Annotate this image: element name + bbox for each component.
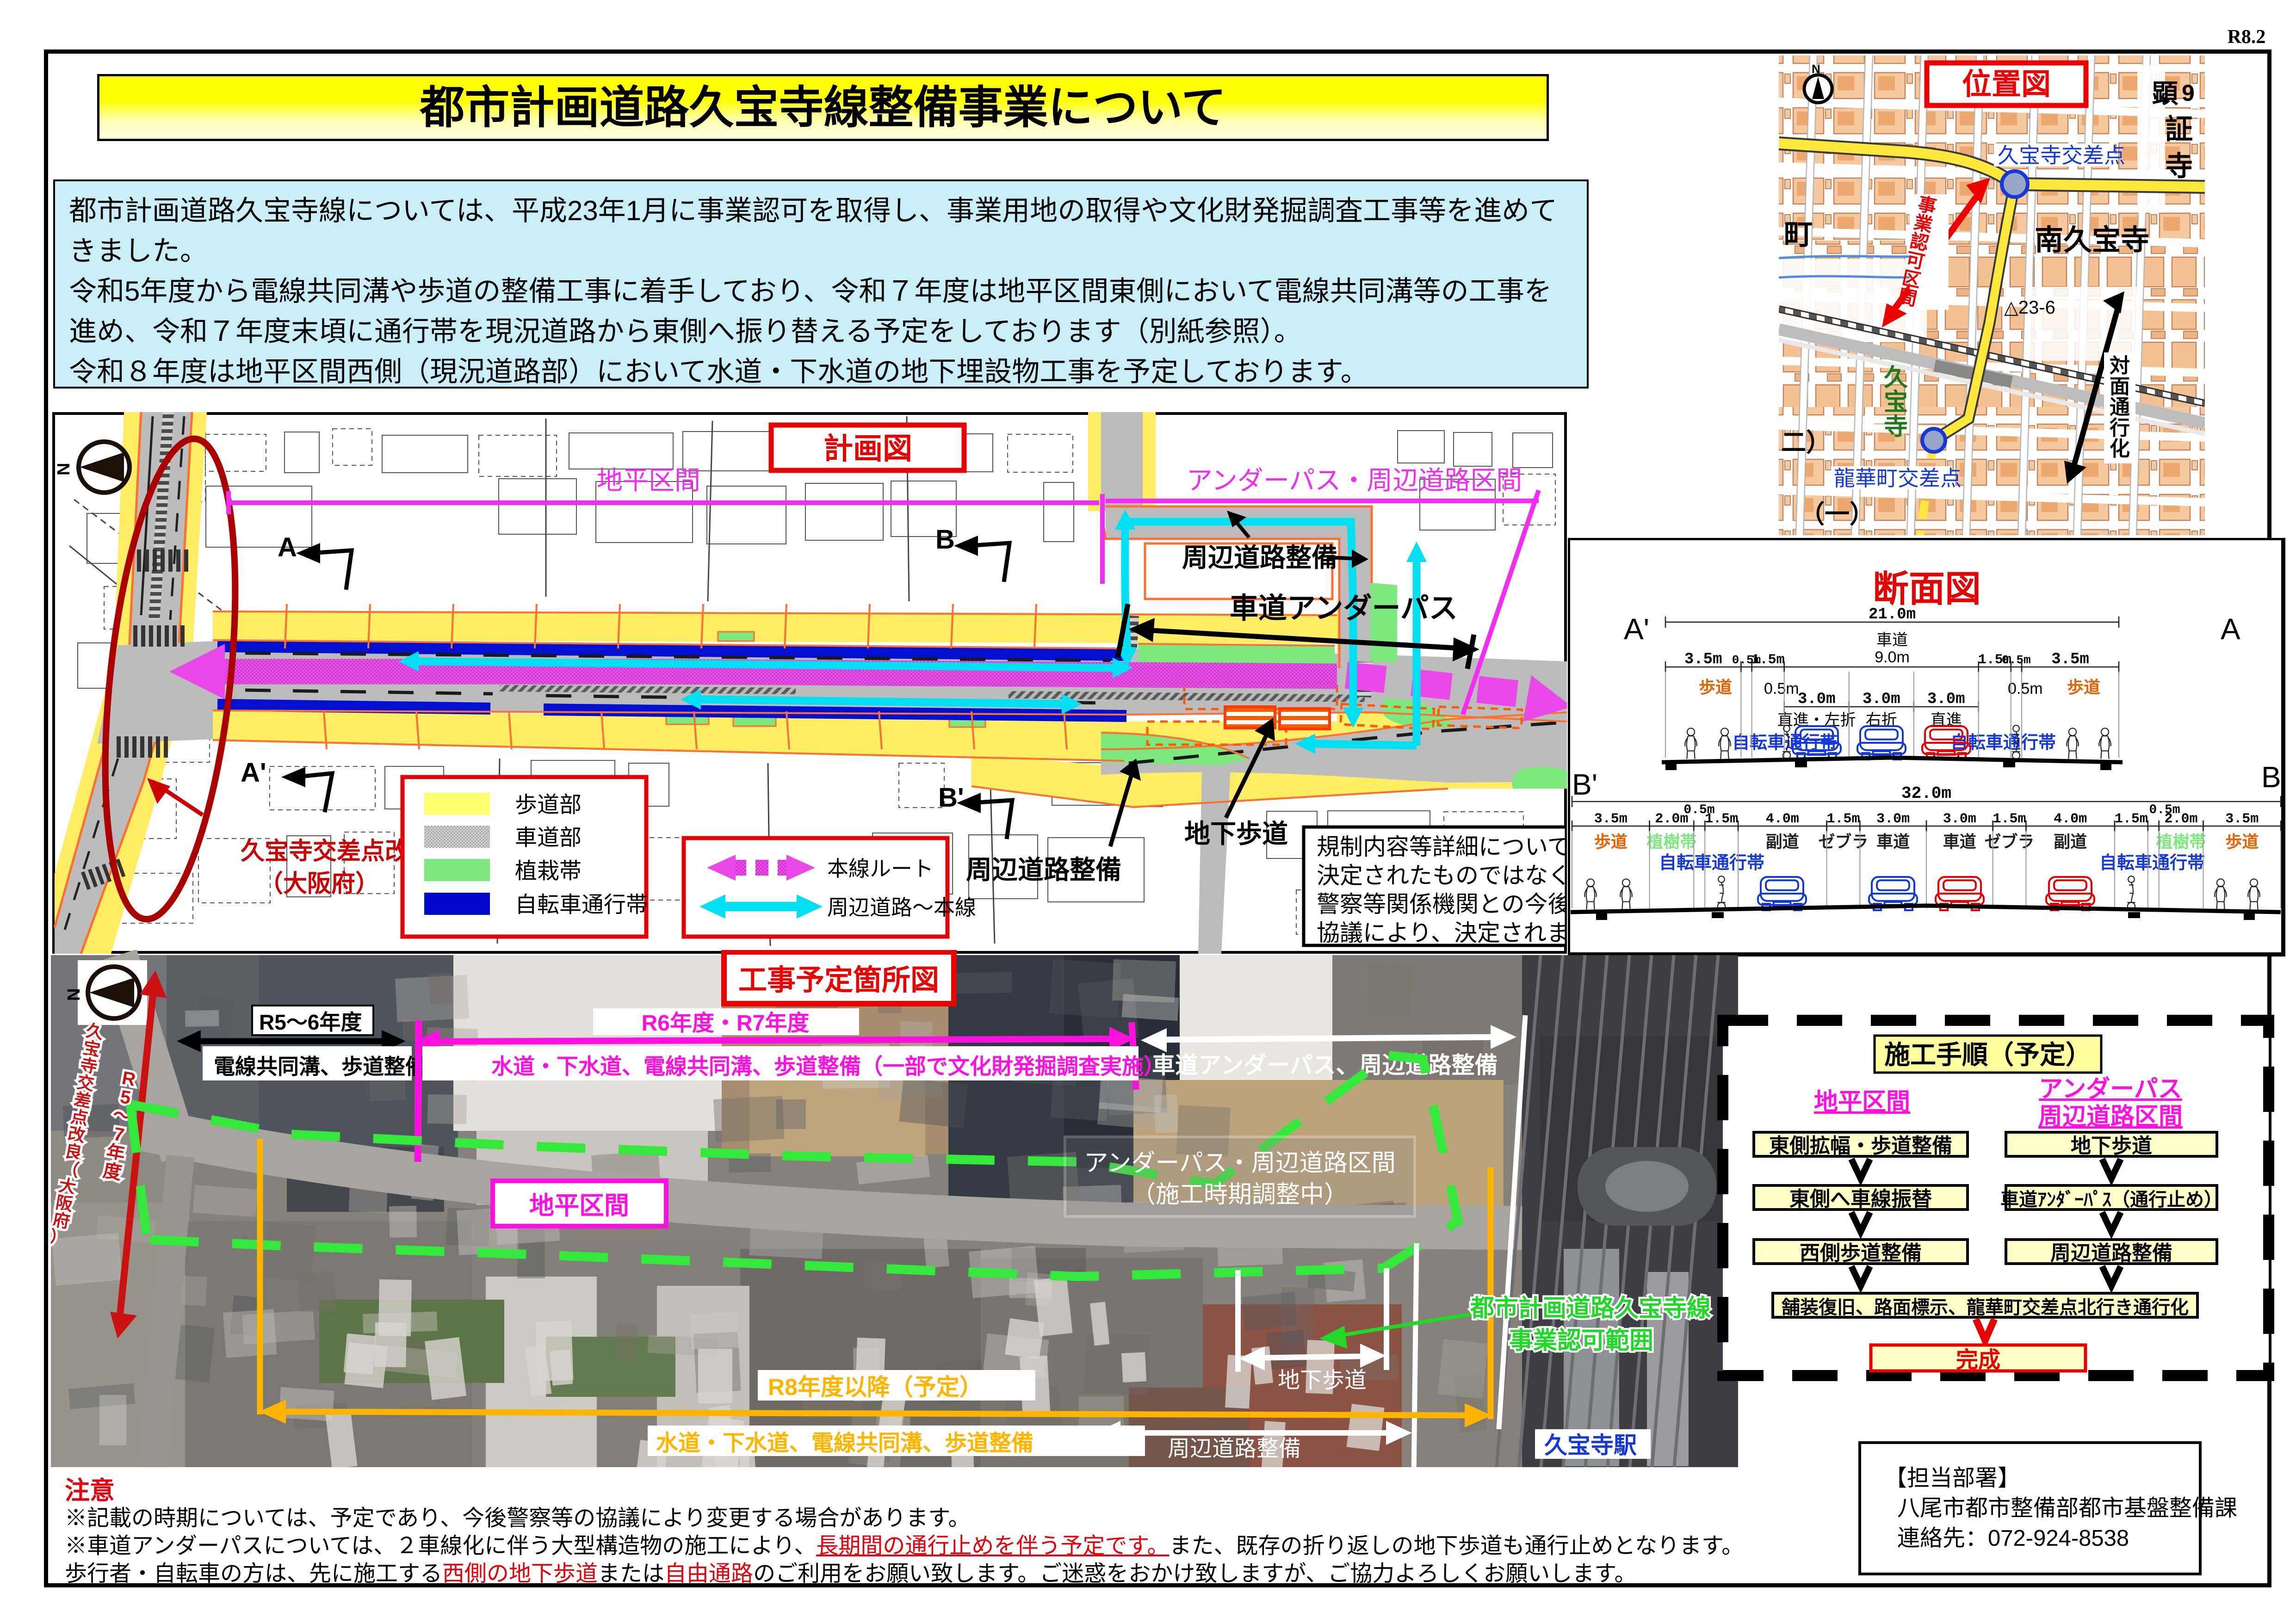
svg-text:行: 行: [2110, 417, 2130, 439]
svg-text:寺: 寺: [2165, 151, 2193, 182]
svg-text:協議により、決定されます。: 協議により、決定されます。: [1317, 920, 1567, 946]
svg-text:通: 通: [2110, 396, 2130, 419]
svg-text:歩道部: 歩道部: [515, 793, 582, 817]
svg-text:アンダーパス・周辺道路区間: アンダーパス・周辺道路区間: [1187, 466, 1522, 495]
svg-text:0.5m: 0.5m: [1764, 680, 1799, 697]
svg-text:西側歩道整備: 西側歩道整備: [1800, 1242, 1922, 1265]
svg-text:南久宝寺: 南久宝寺: [2035, 224, 2149, 256]
svg-text:9.0m: 9.0m: [1875, 648, 1910, 666]
svg-text:周辺道路整備: 周辺道路整備: [1182, 543, 1337, 572]
svg-text:水道・下水道、電線共同溝、歩道整備: 水道・下水道、電線共同溝、歩道整備: [656, 1431, 1034, 1456]
svg-text:副道: 副道: [1766, 832, 1799, 851]
svg-text:車道アンダーパス: 車道アンダーパス: [1230, 592, 1458, 624]
svg-text:（一）: （一）: [1800, 500, 1875, 528]
svg-text:都市計画道路久宝寺線: 都市計画道路久宝寺線: [1470, 1295, 1711, 1322]
svg-text:施工手順（予定）: 施工手順（予定）: [1884, 1040, 2092, 1069]
svg-text:自転車通行帯: 自転車通行帯: [515, 893, 648, 917]
svg-text:断面図: 断面図: [1873, 568, 1981, 609]
svg-text:3.0m: 3.0m: [1863, 691, 1900, 708]
svg-text:3.0m: 3.0m: [1876, 811, 1910, 827]
svg-text:9: 9: [2182, 80, 2195, 106]
svg-text:植樹帯: 植樹帯: [1646, 832, 1696, 851]
svg-text:計画図: 計画図: [823, 432, 912, 465]
svg-text:顕・: 顕・: [2152, 79, 2178, 116]
svg-text:N: N: [64, 988, 84, 1001]
svg-text:R5～6年度: R5～6年度: [259, 1010, 362, 1034]
svg-text:1.5m: 1.5m: [2115, 811, 2148, 827]
svg-text:東側へ車線振替: 東側へ車線振替: [1789, 1188, 1932, 1210]
svg-text:A': A': [241, 758, 266, 788]
svg-text:R8年度以降（予定）: R8年度以降（予定）: [768, 1374, 983, 1400]
svg-text:宝: 宝: [1884, 389, 1908, 416]
svg-text:21.0m: 21.0m: [1869, 606, 1916, 623]
svg-text:周辺道路区間: 周辺道路区間: [2038, 1104, 2183, 1130]
svg-text:B': B': [938, 783, 964, 813]
svg-text:周辺道路～本線: 周辺道路～本線: [827, 895, 976, 919]
svg-text:車道: 車道: [1943, 832, 1976, 851]
svg-text:3.0m: 3.0m: [1798, 691, 1836, 708]
svg-text:地下歩道: 地下歩道: [1184, 819, 1288, 848]
svg-text:ゼブラ: ゼブラ: [1818, 832, 1868, 851]
svg-text:地下歩道: 地下歩道: [1278, 1368, 1367, 1393]
svg-text:龍華町交差点: 龍華町交差点: [1834, 466, 1962, 490]
svg-text:植栽帯: 植栽帯: [515, 859, 582, 883]
svg-text:3.5m: 3.5m: [2225, 811, 2259, 827]
svg-text:歩道: 歩道: [2225, 832, 2259, 851]
svg-text:工事予定箇所図: 工事予定箇所図: [738, 964, 939, 996]
svg-text:3.0m: 3.0m: [1943, 811, 1976, 827]
svg-text:B: B: [2261, 760, 2281, 794]
svg-text:（大阪府）: （大阪府）: [259, 870, 379, 897]
svg-text:位置図: 位置図: [1962, 68, 2051, 101]
svg-text:町: 町: [1784, 219, 1813, 251]
svg-text:化: 化: [2110, 438, 2130, 460]
svg-text:地平区間: 地平区間: [597, 466, 700, 495]
svg-text:1.5m: 1.5m: [1993, 811, 2026, 827]
svg-text:3.5m: 3.5m: [1594, 811, 1628, 827]
svg-text:1.5m: 1.5m: [1751, 652, 1785, 668]
svg-text:A: A: [278, 532, 297, 562]
svg-text:面: 面: [2110, 375, 2130, 398]
svg-text:0.5m: 0.5m: [2002, 653, 2030, 667]
svg-text:32.0m: 32.0m: [1901, 784, 1951, 803]
svg-text:周辺道路整備: 周辺道路整備: [966, 855, 1121, 884]
svg-text:地下歩道: 地下歩道: [2071, 1135, 2152, 1157]
svg-text:寺: 寺: [1884, 413, 1908, 440]
svg-text:車道: 車道: [1876, 832, 1910, 851]
svg-text:度: 度: [101, 1160, 123, 1183]
svg-text:地平区間: 地平区間: [1814, 1089, 1910, 1116]
svg-text:周辺道路整備: 周辺道路整備: [1168, 1437, 1301, 1461]
svg-text:完成: 完成: [1956, 1348, 2000, 1372]
svg-text:0.5m: 0.5m: [2149, 803, 2180, 817]
svg-text:B': B': [1572, 768, 1597, 801]
svg-text:N: N: [54, 463, 74, 475]
svg-text:4.0m: 4.0m: [1766, 811, 1799, 827]
svg-text:3.0m: 3.0m: [1927, 691, 1965, 708]
svg-text:本線ルート: 本線ルート: [827, 857, 934, 881]
svg-text:車道ｱﾝﾀﾞｰﾊﾟｽ（通行止め）: 車道ｱﾝﾀﾞｰﾊﾟｽ（通行止め）: [2000, 1189, 2222, 1210]
svg-text:自転車通行帯: 自転車通行帯: [1659, 853, 1764, 873]
svg-text:歩道: 歩道: [1594, 832, 1628, 851]
svg-text:車道: 車道: [1876, 631, 1908, 649]
svg-text:歩道: 歩道: [1699, 678, 1732, 697]
svg-text:N: N: [1812, 62, 1820, 76]
svg-text:事業認可範囲: 事業認可範囲: [1509, 1327, 1653, 1354]
svg-text:0.5m: 0.5m: [1683, 803, 1714, 817]
svg-text:電線共同溝、歩道整備: 電線共同溝、歩道整備: [214, 1055, 427, 1079]
svg-text:（施工時期調整中）: （施工時期調整中）: [1132, 1181, 1348, 1208]
svg-text:3.5m: 3.5m: [1684, 651, 1722, 668]
svg-text:A: A: [2221, 612, 2240, 646]
svg-text:規制内容等詳細については: 規制内容等詳細については: [1317, 834, 1567, 860]
svg-text:0.5m: 0.5m: [2008, 680, 2043, 697]
svg-text:R6年度・R7年度: R6年度・R7年度: [642, 1011, 810, 1036]
svg-text:舗装復旧、路面標示、龍華町交差点北行き通行化: 舗装復旧、路面標示、龍華町交差点北行き通行化: [1781, 1297, 2189, 1318]
svg-text:東側拡幅・歩道整備: 東側拡幅・歩道整備: [1769, 1135, 1952, 1157]
svg-text:水道・下水道、電線共同溝、歩道整備（一部で文化財発掘調査実施: 水道・下水道、電線共同溝、歩道整備（一部で文化財発掘調査実施）: [491, 1054, 1165, 1079]
svg-text:副道: 副道: [2054, 832, 2087, 851]
svg-text:車道アンダーパス、周辺道路整備: 車道アンダーパス、周辺道路整備: [1152, 1052, 1498, 1078]
svg-text:A': A': [1624, 612, 1649, 646]
svg-text:アンダーパス・周辺道路区間: アンダーパス・周辺道路区間: [1084, 1150, 1395, 1177]
svg-text:警察等関係機関との今後の: 警察等関係機関との今後の: [1317, 891, 1567, 917]
svg-text:久宝寺交差点: 久宝寺交差点: [1998, 143, 2125, 167]
svg-text:アンダーパス: アンダーパス: [2039, 1076, 2182, 1103]
svg-text:1.5m: 1.5m: [1826, 811, 1860, 827]
svg-text:4.0m: 4.0m: [2054, 811, 2087, 827]
svg-text:地平区間: 地平区間: [529, 1192, 629, 1220]
svg-text:証: 証: [2165, 114, 2193, 145]
svg-text:久宝寺駅: 久宝寺駅: [1544, 1432, 1637, 1458]
svg-text:自転車通行帯: 自転車通行帯: [2099, 853, 2205, 873]
svg-text:車道部: 車道部: [515, 826, 582, 850]
svg-text:対: 対: [2110, 354, 2130, 377]
svg-text:歩道: 歩道: [2067, 678, 2100, 697]
svg-text:B: B: [935, 525, 955, 555]
svg-text:△23-6: △23-6: [2004, 297, 2055, 318]
svg-text:二）: 二）: [1781, 429, 1831, 457]
svg-text:ゼブラ: ゼブラ: [1985, 832, 2035, 851]
svg-text:久: 久: [1884, 364, 1908, 391]
svg-text:3.5m: 3.5m: [2051, 651, 2089, 668]
svg-text:周辺道路整備: 周辺道路整備: [2050, 1242, 2172, 1265]
svg-text:植樹帯: 植樹帯: [2156, 832, 2206, 851]
svg-text:決定されたものではなく、: 決定されたものではなく、: [1317, 863, 1567, 889]
